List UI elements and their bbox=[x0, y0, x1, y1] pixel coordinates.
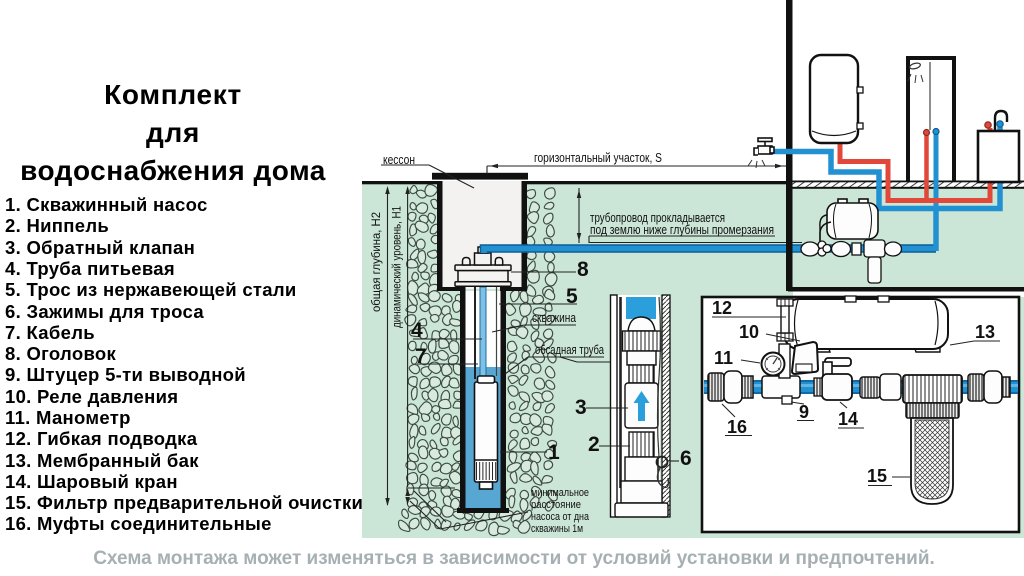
svg-text:13. Мембранный бак: 13. Мембранный бак bbox=[5, 450, 199, 471]
svg-text:15: 15 bbox=[867, 466, 887, 486]
svg-text:кессон: кессон bbox=[383, 153, 415, 167]
svg-text:1: 1 bbox=[548, 441, 560, 464]
svg-text:12: 12 bbox=[712, 298, 732, 318]
svg-text:16. Муфты соединительные: 16. Муфты соединительные bbox=[5, 513, 272, 534]
svg-text:10. Реле давления: 10. Реле давления bbox=[5, 386, 178, 407]
svg-text:расстояние: расстояние bbox=[531, 499, 581, 511]
svg-text:3. Обратный клапан: 3. Обратный клапан bbox=[5, 237, 195, 258]
svg-text:Комплект: Комплект bbox=[104, 79, 242, 110]
svg-text:11. Манометр: 11. Манометр bbox=[5, 407, 131, 428]
svg-text:5. Трос из нержавеющей стали: 5. Трос из нержавеющей стали bbox=[5, 279, 297, 300]
svg-text:15. Фильтр предварительной очи: 15. Фильтр предварительной очистки bbox=[5, 492, 363, 513]
svg-text:16: 16 bbox=[727, 417, 747, 437]
svg-text:7. Кабель: 7. Кабель bbox=[5, 322, 95, 343]
svg-text:6. Зажимы для троса: 6. Зажимы для троса bbox=[5, 301, 204, 322]
svg-text:6: 6 bbox=[680, 447, 692, 470]
svg-text:1. Скважинный насос: 1. Скважинный насос bbox=[5, 194, 208, 215]
svg-text:обсадная труба: обсадная труба bbox=[535, 343, 604, 357]
svg-text:2. Ниппель: 2. Ниппель bbox=[5, 215, 109, 236]
svg-text:скважина: скважина bbox=[532, 311, 576, 325]
svg-text:5: 5 bbox=[566, 285, 578, 308]
svg-text:горизонтальный участок, S: горизонтальный участок, S bbox=[534, 151, 662, 165]
svg-text:14: 14 bbox=[838, 409, 858, 429]
svg-text:насоса от дна: насоса от дна bbox=[531, 511, 590, 523]
svg-text:2: 2 bbox=[588, 433, 600, 456]
svg-text:9. Штуцер 5-ти выводной: 9. Штуцер 5-ти выводной bbox=[5, 364, 246, 385]
svg-text:13: 13 bbox=[975, 322, 995, 342]
svg-text:10: 10 bbox=[739, 322, 759, 342]
svg-text:4: 4 bbox=[411, 319, 423, 342]
svg-text:11: 11 bbox=[714, 348, 733, 368]
svg-text:7: 7 bbox=[415, 345, 427, 368]
svg-text:3: 3 bbox=[575, 396, 587, 419]
svg-text:8. Оголовок: 8. Оголовок bbox=[5, 343, 116, 364]
svg-text:под землю ниже глубины промерз: под землю ниже глубины промерзания bbox=[590, 223, 774, 237]
svg-text:8: 8 bbox=[577, 258, 589, 281]
svg-text:минимальное: минимальное bbox=[531, 487, 589, 499]
svg-text:для: для bbox=[146, 117, 200, 148]
svg-text:14. Шаровый кран: 14. Шаровый кран bbox=[5, 471, 178, 492]
svg-text:динамический уровень, Н1: динамический уровень, Н1 bbox=[392, 206, 404, 328]
svg-text:Схема монтажа может изменяться: Схема монтажа может изменяться в зависим… bbox=[93, 548, 935, 569]
svg-text:9: 9 bbox=[799, 402, 809, 422]
svg-text:общая глубина, Н2: общая глубина, Н2 bbox=[371, 212, 383, 312]
svg-text:скважины 1м: скважины 1м bbox=[531, 523, 583, 535]
svg-text:4. Труба питьевая: 4. Труба питьевая bbox=[5, 258, 175, 279]
svg-text:водоснабжения дома: водоснабжения дома bbox=[20, 155, 326, 186]
svg-text:12. Гибкая подводка: 12. Гибкая подводка bbox=[5, 428, 198, 449]
